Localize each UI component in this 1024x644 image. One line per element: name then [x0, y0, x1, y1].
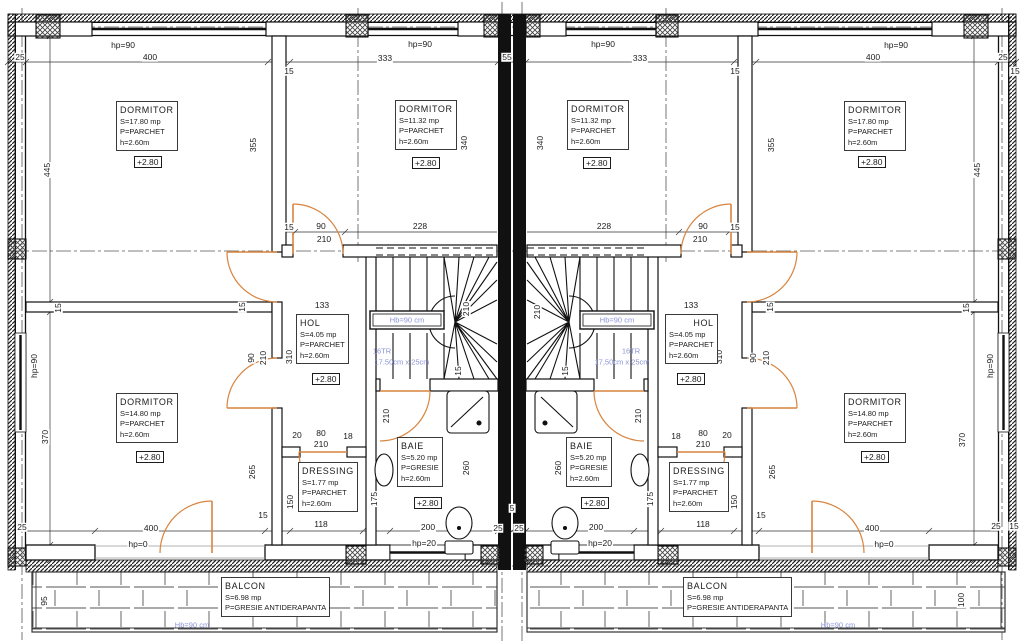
room-area: S=4.05 mp [300, 330, 345, 341]
dim-label: 370 [41, 429, 50, 445]
room-height: h=2.60m [120, 430, 174, 441]
dim-label: hp=20 [587, 539, 613, 548]
dim-label: 80 [697, 429, 708, 438]
dim-label: 5 [509, 504, 516, 513]
dim-label: 90 [697, 222, 708, 231]
dim-label: 210 [259, 350, 268, 366]
room-name: HOL [300, 317, 345, 330]
room-label-dormitor-bottom-left: DORMITOR S=14.80 mp P=PARCHET h=2.60m [116, 393, 178, 443]
door-swings [160, 204, 864, 553]
dim-label: 340 [460, 135, 469, 151]
dim-label: 260 [554, 460, 563, 476]
room-area: S=11.32 mp [571, 116, 625, 127]
dim-label: 333 [377, 54, 393, 63]
top-wall [8, 14, 1016, 38]
dim-label: 210 [692, 235, 708, 244]
dim-label: 400 [143, 524, 159, 533]
room-floor: P=GRESIE [570, 463, 608, 474]
dim-label: 15 [283, 67, 294, 76]
dim-label: 370 [958, 432, 967, 448]
dim-label: 265 [248, 464, 257, 480]
room-label-hol-right: HOL S=4.05 mp P=PARCHET h=2.60m [665, 314, 718, 364]
room-area: S=14.80 mp [120, 409, 174, 420]
room-area: S=14.80 mp [848, 409, 902, 420]
room-floor: P=GRESIE [401, 463, 439, 474]
room-name: HOL [669, 317, 714, 330]
room-label-dormitor-mid-right: DORMITOR S=11.32 mp P=PARCHET h=2.60m [567, 100, 629, 150]
level-badge: +2.80 [412, 157, 440, 169]
room-floor: P=PARCHET [848, 419, 902, 430]
dim-label: 400 [864, 524, 880, 533]
room-name: BALCON [225, 580, 326, 593]
dim-label: hp=0 [873, 540, 894, 549]
dim-label: 210 [382, 408, 391, 424]
dim-label: 355 [249, 137, 258, 153]
stair-rail-annotation: Hb=90 cm [390, 316, 424, 324]
room-area: S=5.20 mp [401, 453, 439, 464]
sink-left [375, 454, 393, 486]
room-floor: P=PARCHET [300, 340, 345, 351]
dim-label: 18 [342, 432, 353, 441]
dim-label: 100 [957, 592, 966, 608]
room-area: S=4.05 mp [669, 330, 714, 341]
dim-label: 55 [501, 53, 512, 62]
dim-label: 333 [632, 54, 648, 63]
dim-label: 15 [1009, 67, 1020, 76]
dim-label: 15 [283, 223, 294, 232]
dim-label: 25 [513, 524, 524, 533]
room-floor: P=GRESIE ANTIDERAPANTA [687, 603, 788, 614]
dim-label: 20 [721, 431, 732, 440]
dim-label: 210 [462, 301, 471, 317]
dim-label: 175 [370, 491, 379, 507]
dim-label: 210 [762, 350, 771, 366]
left-wall [8, 14, 26, 570]
dim-label: 150 [286, 494, 295, 510]
dim-label: 210 [634, 408, 643, 424]
room-label-baie-right: BAIE S=5.20 mp P=GRESIE h=2.60m [566, 437, 612, 487]
balcony-rail-annotation: Hb=90 cm [175, 621, 209, 629]
dim-label: hp=90 [883, 41, 909, 50]
room-height: h=2.60m [848, 430, 902, 441]
dim-label: 150 [730, 494, 739, 510]
room-label-dormitor-bottom-right: DORMITOR S=14.80 mp P=PARCHET h=2.60m [844, 393, 906, 443]
room-area: S=11.32 mp [399, 116, 453, 127]
dim-label: 15 [1008, 522, 1019, 531]
dim-label: 445 [973, 162, 982, 178]
room-name: DORMITOR [120, 104, 174, 117]
level-badge: +2.80 [677, 373, 705, 385]
room-label-dressing-left: DRESSING S=1.77 mp P=PARCHET h=2.60m [298, 462, 358, 512]
room-height: h=2.60m [120, 138, 174, 149]
room-floor: P=PARCHET [120, 419, 174, 430]
level-badge: +2.80 [583, 157, 611, 169]
room-name: DORMITOR [571, 103, 625, 116]
floorplan-drawing [0, 0, 1024, 644]
room-label-dressing-right: DRESSING S=1.77 mp P=PARCHET h=2.60m [669, 462, 729, 512]
dim-label: 355 [767, 137, 776, 153]
room-name: DRESSING [673, 465, 725, 478]
room-height: h=2.60m [570, 474, 608, 485]
level-badge: +2.80 [134, 156, 162, 168]
room-floor: P=PARCHET [571, 126, 625, 137]
room-label-dormitor-top-right: DORMITOR S=17.80 mp P=PARCHET h=2.60m [844, 101, 906, 151]
room-area: S=1.77 mp [673, 478, 725, 489]
dim-label: 20 [291, 431, 302, 440]
room-floor: P=PARCHET [302, 488, 354, 499]
room-height: h=2.60m [848, 138, 902, 149]
dim-label: hp=90 [30, 353, 39, 379]
dim-label: 15 [755, 511, 766, 520]
room-name: BAIE [401, 440, 439, 453]
dim-label: 118 [695, 520, 711, 529]
dim-label: 200 [588, 523, 604, 532]
dim-label: 260 [462, 460, 471, 476]
floor-plan: 25 hp=90 400 15 hp=90 333 55 333 hp=90 1… [0, 0, 1024, 644]
dim-label: 265 [768, 464, 777, 480]
level-badge: +2.80 [861, 451, 889, 463]
room-height: h=2.60m [399, 137, 453, 148]
level-badge: +2.80 [858, 156, 886, 168]
dim-label: 25 [16, 523, 27, 532]
dim-label: 15 [257, 511, 268, 520]
dim-label: hp=90 [590, 40, 616, 49]
dim-label: 133 [683, 301, 699, 310]
dim-label: 25 [14, 53, 25, 62]
room-floor: P=PARCHET [399, 126, 453, 137]
room-area: S=1.77 mp [302, 478, 354, 489]
dim-label: hp=20 [411, 539, 437, 548]
room-name: DORMITOR [848, 104, 902, 117]
room-floor: P=PARCHET [848, 127, 902, 138]
room-height: h=2.60m [302, 499, 354, 510]
dim-label: 90 [315, 222, 326, 231]
dim-label: 200 [420, 523, 436, 532]
level-badge: +2.80 [581, 497, 609, 509]
dim-label: 210 [533, 304, 542, 320]
dim-label: hp=90 [110, 41, 136, 50]
right-wall [998, 14, 1016, 570]
room-label-balcon-right: BALCON S=6.98 mp P=GRESIE ANTIDERAPANTA [683, 577, 792, 617]
room-height: h=2.60m [300, 351, 345, 362]
room-label-dormitor-mid-left: DORMITOR S=11.32 mp P=PARCHET h=2.60m [395, 100, 457, 150]
dim-label: 15 [962, 302, 971, 313]
party-wall [498, 14, 526, 570]
room-height: h=2.60m [571, 137, 625, 148]
dim-label: 25 [990, 522, 1001, 531]
dim-label: 15 [729, 67, 740, 76]
stair-rail-annotation: Hb=90 cm [600, 316, 634, 324]
dim-label: 15 [238, 301, 247, 312]
dim-label: 18 [670, 432, 681, 441]
room-floor: P=PARCHET [120, 127, 174, 138]
dim-label: 310 [285, 349, 294, 365]
room-label-hol-left: HOL S=4.05 mp P=PARCHET h=2.60m [296, 314, 349, 364]
room-name: DORMITOR [399, 103, 453, 116]
room-floor: P=GRESIE ANTIDERAPANTA [225, 603, 326, 614]
room-floor: P=PARCHET [669, 340, 714, 351]
room-name: DORMITOR [120, 396, 174, 409]
dim-label: 15 [766, 301, 775, 312]
room-height: h=2.60m [401, 474, 439, 485]
toilet-left [446, 507, 472, 539]
dim-label: 400 [865, 53, 881, 62]
room-label-baie-left: BAIE S=5.20 mp P=GRESIE h=2.60m [397, 437, 443, 487]
room-area: S=6.98 mp [687, 593, 788, 604]
room-area: S=6.98 mp [225, 593, 326, 604]
level-badge: +2.80 [312, 373, 340, 385]
level-badge: +2.80 [414, 497, 442, 509]
room-name: BALCON [687, 580, 788, 593]
dim-label: 210 [695, 440, 711, 449]
dim-label: 15 [454, 365, 463, 376]
room-height: h=2.60m [673, 499, 725, 510]
dim-label: 340 [536, 135, 545, 151]
stair-treads-annotation: 16TR [373, 347, 391, 355]
toilet-right [552, 507, 578, 539]
room-name: BAIE [570, 440, 608, 453]
dim-label: 15 [54, 302, 63, 313]
dim-label: 210 [313, 440, 329, 449]
dim-label: 228 [412, 222, 428, 231]
dim-label: 80 [315, 429, 326, 438]
dim-label: 400 [142, 53, 158, 62]
room-label-balcon-left: BALCON S=6.98 mp P=GRESIE ANTIDERAPANTA [221, 577, 330, 617]
room-area: S=5.20 mp [570, 453, 608, 464]
dim-label: 25 [492, 524, 503, 533]
dim-label: hp=0 [127, 540, 148, 549]
stair-tread-size-annotation: 17.50cm x 25cm [374, 358, 429, 366]
dim-label: 25 [997, 53, 1008, 62]
dim-label: 15 [729, 223, 740, 232]
level-badge: +2.80 [136, 451, 164, 463]
dim-label: 228 [596, 222, 612, 231]
room-height: h=2.60m [669, 351, 714, 362]
stair-tread-size-annotation: 17,50cm x 25cm [594, 358, 649, 366]
room-label-dormitor-top-left: DORMITOR S=17.80 mp P=PARCHET h=2.60m [116, 101, 178, 151]
dim-label: 15 [561, 365, 570, 376]
bottom-wall [26, 545, 998, 572]
room-area: S=17.80 mp [120, 117, 174, 128]
balcony-rail-annotation: Hb=90 cm [821, 621, 855, 629]
stair-treads-annotation: 16TR [622, 347, 640, 355]
dim-label: hp=90 [407, 40, 433, 49]
dim-label: 210 [316, 235, 332, 244]
room-name: DRESSING [302, 465, 354, 478]
dim-label: 445 [43, 162, 52, 178]
sink-right [631, 454, 649, 486]
dim-label: hp=90 [986, 353, 995, 379]
dim-label: 90 [749, 352, 758, 363]
dim-label: 90 [247, 352, 256, 363]
room-floor: P=PARCHET [673, 488, 725, 499]
dim-label: 95 [40, 595, 49, 606]
dim-label: 133 [314, 301, 330, 310]
room-name: DORMITOR [848, 396, 902, 409]
room-area: S=17.80 mp [848, 117, 902, 128]
dim-label: 118 [313, 520, 329, 529]
dim-label: 175 [646, 491, 655, 507]
